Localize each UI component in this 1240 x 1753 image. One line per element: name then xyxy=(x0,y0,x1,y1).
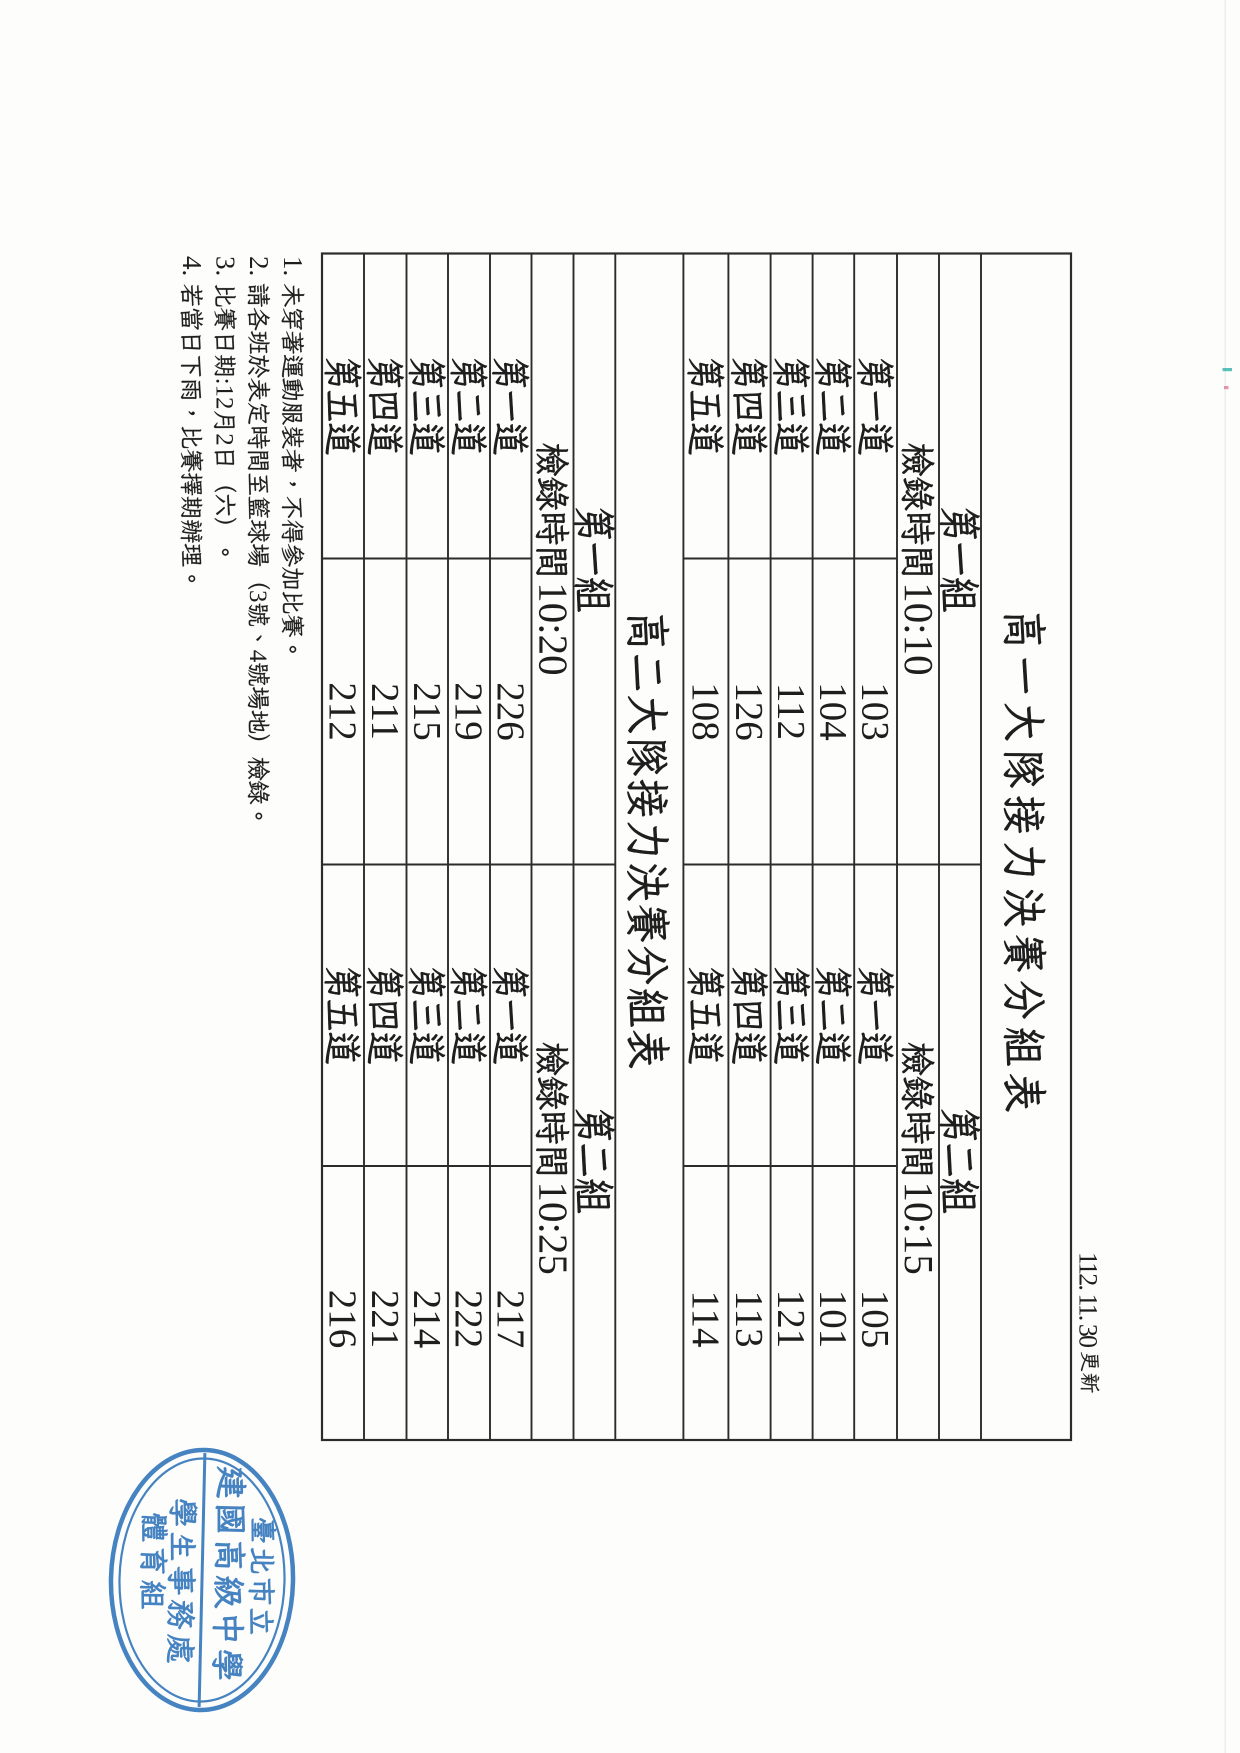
svg-text:212: 212 xyxy=(321,682,364,741)
svg-text:121: 121 xyxy=(770,1290,813,1349)
svg-text:4: 4 xyxy=(244,650,271,663)
svg-text:219: 219 xyxy=(447,682,490,741)
svg-text:10:25: 10:25 xyxy=(531,1182,577,1275)
svg-text:215: 215 xyxy=(405,682,448,741)
svg-text:104: 104 xyxy=(812,682,855,741)
svg-text:214: 214 xyxy=(405,1290,448,1349)
svg-text:126: 126 xyxy=(728,682,771,741)
svg-text:112. 11. 30: 112. 11. 30 xyxy=(1074,1252,1103,1348)
svg-text:105: 105 xyxy=(854,1290,897,1349)
svg-text:217: 217 xyxy=(489,1290,532,1349)
svg-text:3.: 3. xyxy=(211,256,241,276)
svg-text:1.: 1. xyxy=(278,256,308,276)
svg-text::12: :12 xyxy=(211,378,238,410)
svg-text:114: 114 xyxy=(684,1290,727,1347)
svg-text:108: 108 xyxy=(684,682,727,741)
svg-text:4.: 4. xyxy=(177,256,207,276)
svg-text:112: 112 xyxy=(770,683,813,740)
svg-text:101: 101 xyxy=(812,1290,855,1349)
svg-text:211: 211 xyxy=(363,683,406,740)
svg-text:10:20: 10:20 xyxy=(531,582,577,675)
svg-text:2.: 2. xyxy=(244,256,274,276)
svg-text:222: 222 xyxy=(447,1290,490,1349)
svg-text:103: 103 xyxy=(854,682,897,741)
svg-text:10:10: 10:10 xyxy=(896,582,942,675)
svg-text:10:15: 10:15 xyxy=(896,1182,942,1275)
svg-text:2: 2 xyxy=(211,433,238,446)
svg-text:113: 113 xyxy=(728,1290,771,1347)
svg-text:3: 3 xyxy=(244,590,271,603)
svg-text:221: 221 xyxy=(363,1290,406,1349)
svg-text:226: 226 xyxy=(489,682,532,741)
svg-text:216: 216 xyxy=(321,1290,364,1349)
